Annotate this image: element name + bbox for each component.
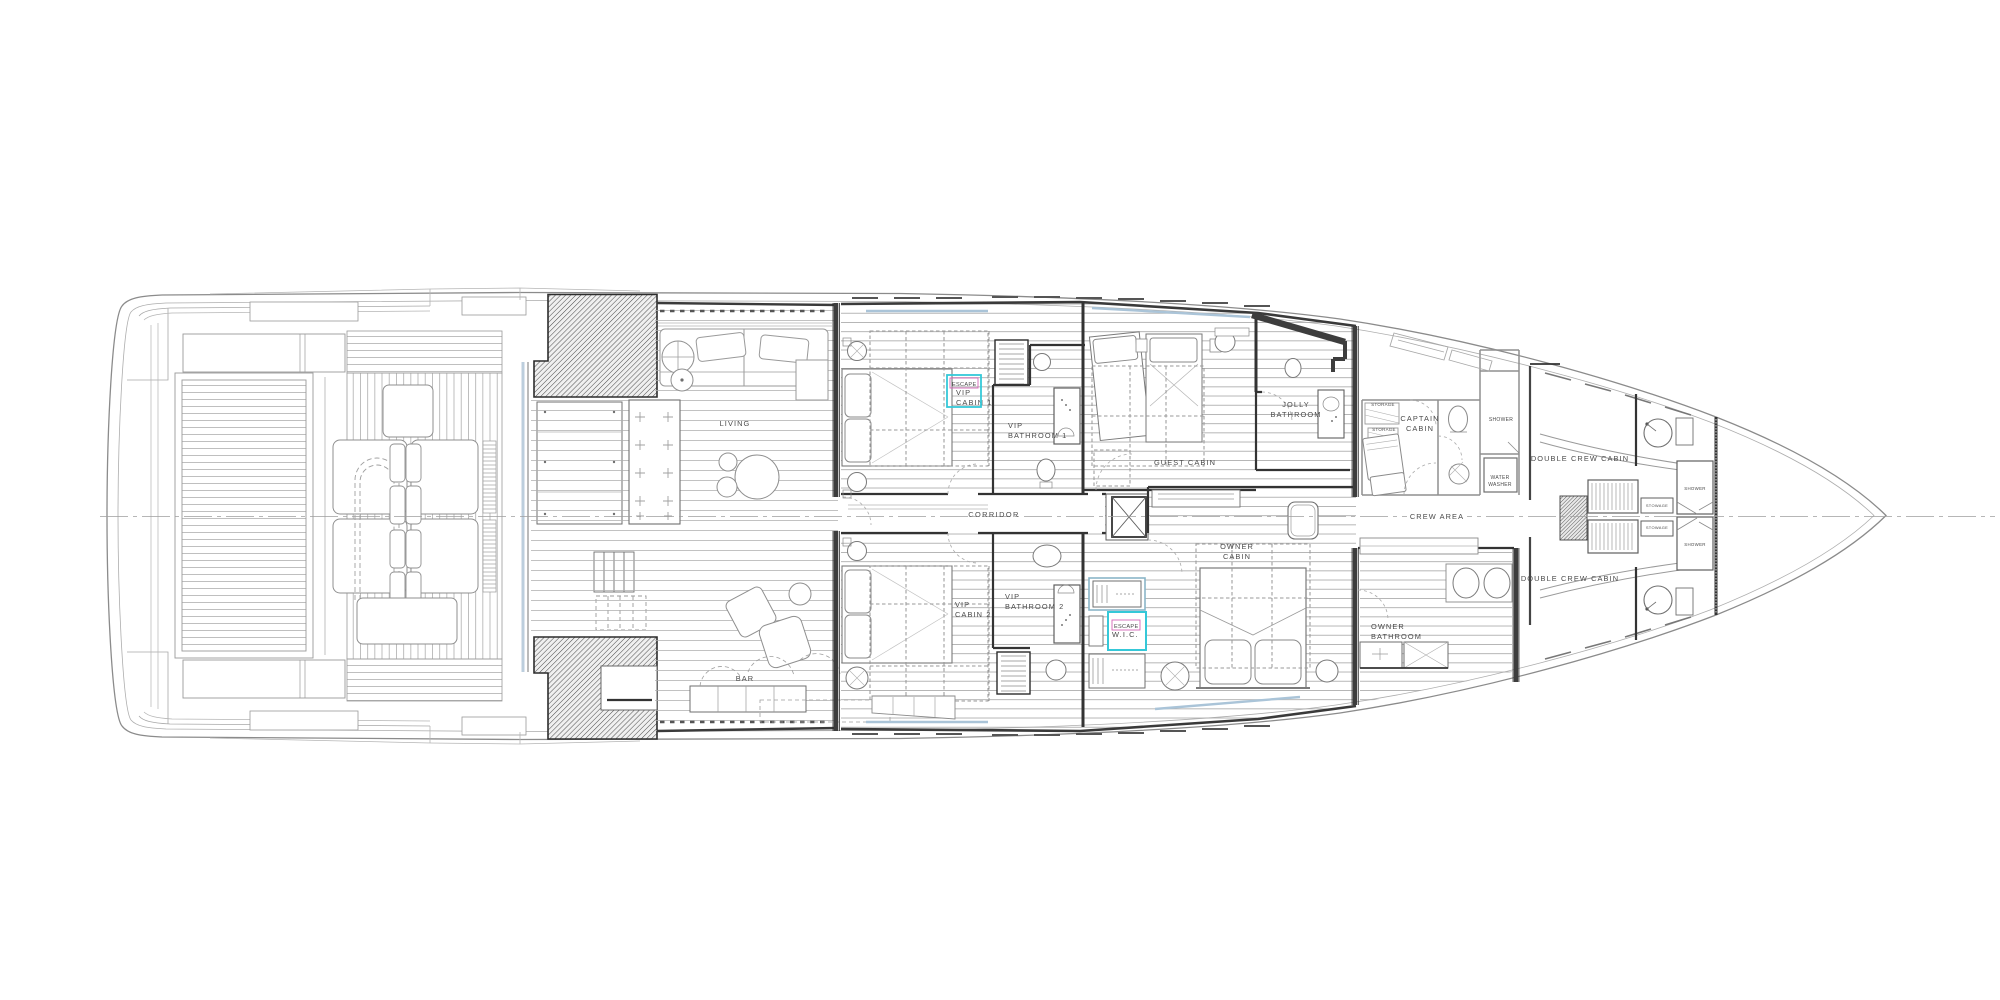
svg-text:CAPTAIN: CAPTAIN bbox=[1400, 414, 1439, 423]
svg-text:SHOWER: SHOWER bbox=[1489, 417, 1513, 423]
svg-text:STORAGE: STORAGE bbox=[1371, 402, 1395, 407]
svg-text:OWNER: OWNER bbox=[1220, 542, 1254, 551]
svg-text:BATHROOM: BATHROOM bbox=[1371, 632, 1422, 641]
svg-text:DOUBLE CREW CABIN: DOUBLE CREW CABIN bbox=[1531, 454, 1629, 463]
svg-text:CABIN 2: CABIN 2 bbox=[955, 610, 991, 619]
svg-text:ESCAPE: ESCAPE bbox=[1114, 624, 1139, 630]
svg-text:BATHROOM 2: BATHROOM 2 bbox=[1005, 602, 1064, 611]
svg-text:CORRIDOR: CORRIDOR bbox=[968, 510, 1019, 519]
svg-text:CABIN 1: CABIN 1 bbox=[956, 398, 992, 407]
svg-text:BATHROOM 1: BATHROOM 1 bbox=[1008, 431, 1067, 440]
svg-text:VIP: VIP bbox=[1008, 421, 1023, 430]
svg-text:WATER: WATER bbox=[1491, 475, 1510, 481]
svg-text:BAR: BAR bbox=[736, 674, 755, 683]
svg-text:CABIN: CABIN bbox=[1223, 552, 1251, 561]
svg-text:VIP: VIP bbox=[956, 388, 971, 397]
svg-text:ESCAPE: ESCAPE bbox=[952, 382, 977, 388]
svg-text:BATHROOM: BATHROOM bbox=[1271, 410, 1322, 419]
svg-text:OWNER: OWNER bbox=[1371, 622, 1405, 631]
svg-text:W.I.C.: W.I.C. bbox=[1112, 630, 1139, 639]
svg-text:GUEST CABIN: GUEST CABIN bbox=[1154, 458, 1216, 467]
svg-text:SHOWER: SHOWER bbox=[1684, 486, 1706, 491]
svg-text:WASHER: WASHER bbox=[1488, 482, 1512, 488]
svg-text:DOUBLE CREW CABIN: DOUBLE CREW CABIN bbox=[1521, 574, 1619, 583]
svg-text:SHOWER: SHOWER bbox=[1684, 542, 1706, 547]
svg-text:VIP: VIP bbox=[1005, 592, 1020, 601]
svg-text:STOWAGE: STOWAGE bbox=[1646, 503, 1668, 508]
svg-text:CREW AREA: CREW AREA bbox=[1410, 512, 1464, 521]
svg-text:VIP: VIP bbox=[955, 600, 970, 609]
svg-text:JOLLY: JOLLY bbox=[1282, 400, 1310, 409]
svg-text:STOWAGE: STOWAGE bbox=[1646, 525, 1668, 530]
svg-text:CABIN: CABIN bbox=[1406, 424, 1434, 433]
svg-text:STORAGE: STORAGE bbox=[1372, 427, 1396, 432]
svg-text:LIVING: LIVING bbox=[720, 419, 751, 428]
